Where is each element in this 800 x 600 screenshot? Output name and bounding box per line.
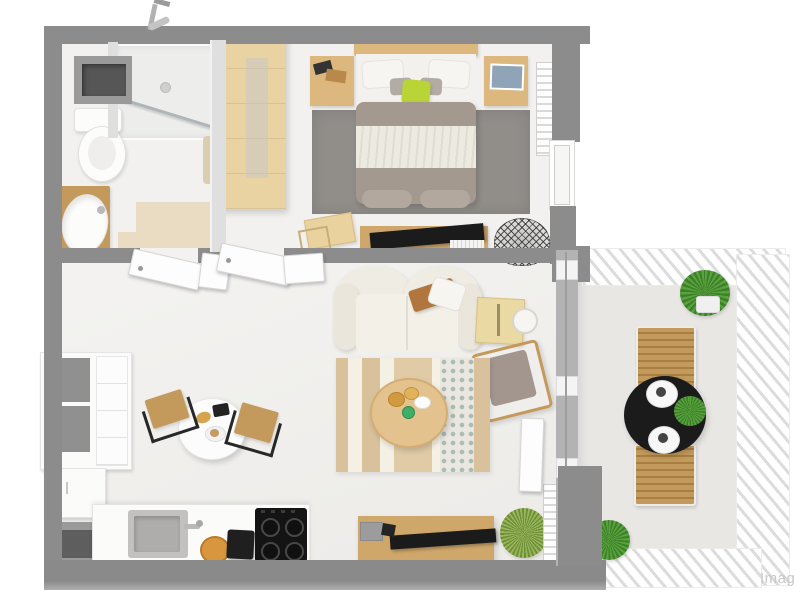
bathroom-door-handle xyxy=(138,266,143,271)
floor-plan: Imag xyxy=(0,0,800,600)
bedroom-door-handle xyxy=(226,258,231,263)
hallway-doors xyxy=(0,0,800,600)
second-door-leaf xyxy=(283,253,325,285)
watermark-text: Imag xyxy=(760,570,795,587)
